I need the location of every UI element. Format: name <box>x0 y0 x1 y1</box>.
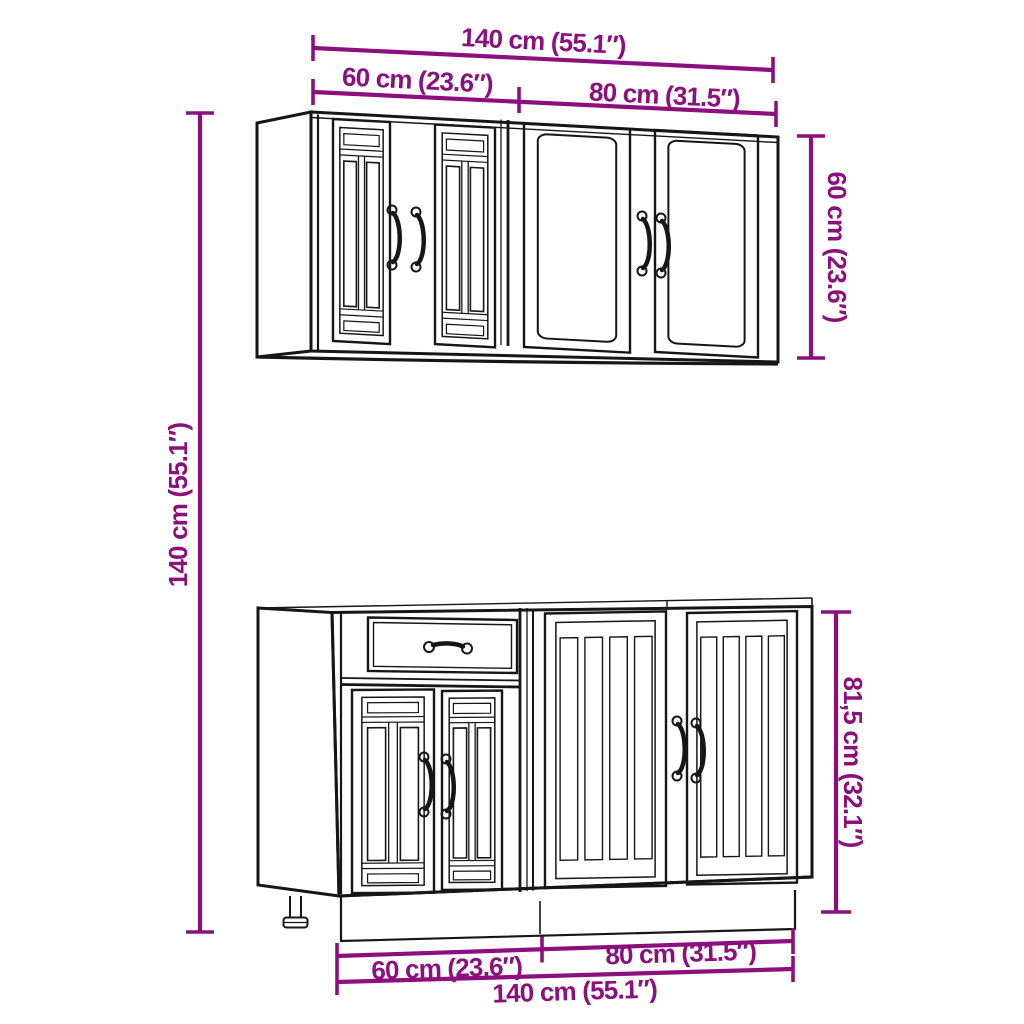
dimension-lines <box>186 35 851 995</box>
base-left-door-1 <box>352 689 434 893</box>
wall-door-handle <box>657 214 669 278</box>
wall-cabinet-drawing <box>257 112 778 364</box>
wall-door-handle <box>638 212 650 276</box>
wall-left-door-2 <box>435 125 495 348</box>
base-cabinet-drawing <box>258 598 812 941</box>
wall-left-door-1 <box>333 119 390 344</box>
dim-base-right-width-label: 80 cm (31.5″) <box>605 936 757 971</box>
dim-wall-height-label: 60 cm (23.6″) <box>822 172 852 323</box>
diagram-canvas: 140 cm (55.1″) 60 cm (23.6″) 80 cm (31.5… <box>0 0 1024 1024</box>
base-cabinet-side-panel <box>258 608 339 896</box>
drawer-handle <box>424 642 472 654</box>
cabinet-leg <box>284 896 308 928</box>
wall-cabinet-side-panel <box>257 112 311 357</box>
base-cabinet-front <box>332 607 812 897</box>
base-right-door-1 <box>545 611 666 888</box>
base-door-handle <box>420 753 432 817</box>
wall-door-handle <box>412 208 424 272</box>
wall-cabinet-front <box>311 112 778 362</box>
dim-base-height-label: 81,5 cm (32.1″) <box>838 676 868 847</box>
base-door-handle <box>673 717 685 781</box>
cabinet-dimension-diagram: 140 cm (55.1″) 60 cm (23.6″) 80 cm (31.5… <box>0 0 1024 1024</box>
dim-overall-height-label: 140 cm (55.1″) <box>163 423 193 588</box>
base-cabinet-plinth <box>341 890 795 941</box>
base-door-handle <box>442 755 454 819</box>
base-left-door-2 <box>442 691 502 890</box>
dim-base-total-width-label: 140 cm (55.1″) <box>492 973 658 1008</box>
dimension-labels: 140 cm (55.1″) 60 cm (23.6″) 80 cm (31.5… <box>163 22 868 1009</box>
wall-right-door-1 <box>524 124 630 353</box>
